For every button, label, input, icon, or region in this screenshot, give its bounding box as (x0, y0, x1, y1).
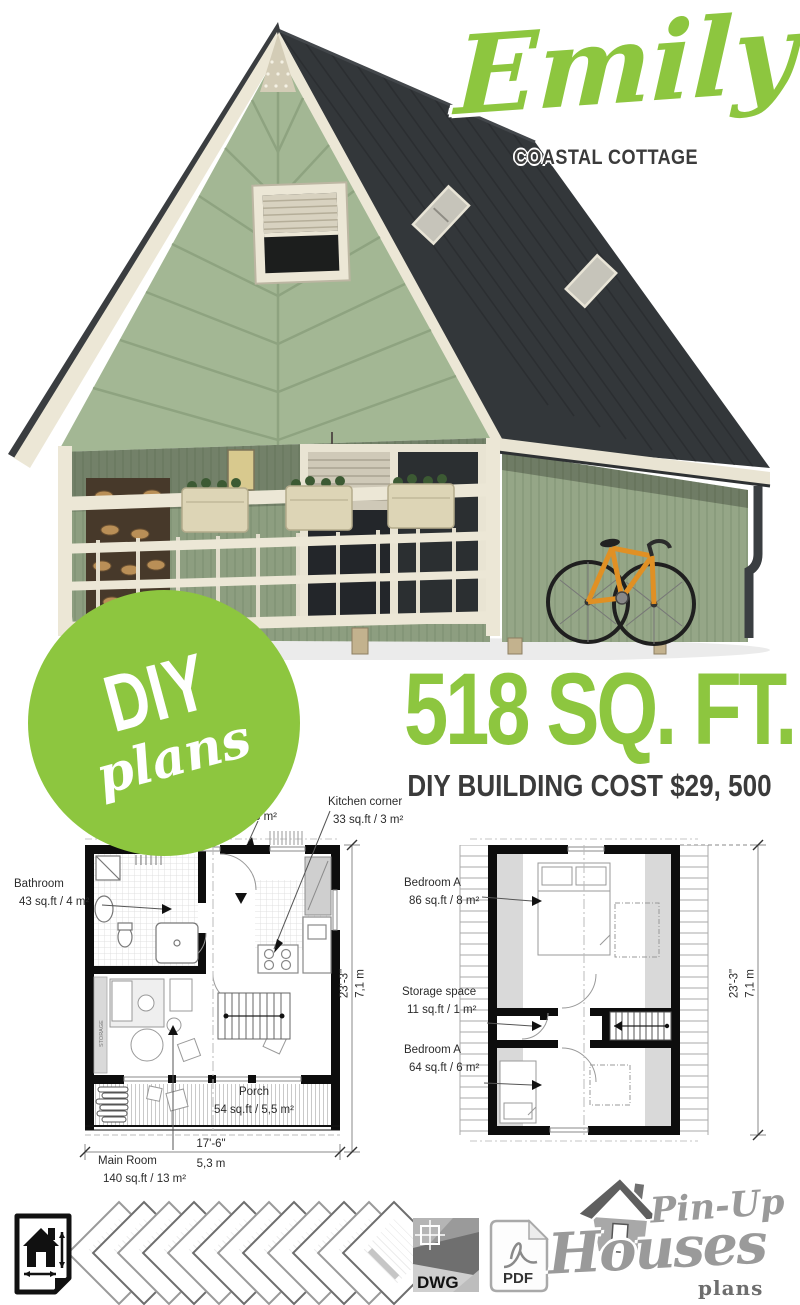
dwg-label: DWG (417, 1273, 459, 1292)
stairs (610, 1012, 671, 1040)
downspout (749, 486, 758, 638)
label-porch: Porch 54 sq.ft / 5,5 m² (198, 1084, 310, 1120)
label-bedroom-a: Bedroom A 86 sq.ft / 8 m² (404, 875, 479, 911)
label-bathroom: Bathroom 43 sq.ft / 4 m² (14, 876, 89, 912)
pdf-file-icon: PDF (489, 1219, 549, 1293)
label-kitchen-corner: Kitchen corner 33 sq.ft / 3 m² (328, 794, 403, 830)
page-subtitle: COASTAL COTTAGE (514, 146, 698, 170)
label-storage-space: Storage space 11 sq.ft / 1 m² (402, 984, 476, 1020)
double-bed (538, 863, 610, 955)
page-title: Emily (453, 0, 798, 137)
gable-window (252, 182, 349, 283)
dimension-depth-upper: 23'-3" 7,1 m (727, 947, 758, 1021)
stairs (218, 993, 290, 1039)
diy-plans-badge: DIY plans (28, 590, 300, 856)
floor-area-headline: 518 SQ. FT. (404, 656, 794, 763)
logo-plans-text: plans (698, 1276, 763, 1300)
single-bed (500, 1061, 536, 1123)
dimension-depth-ground: 23'-3" 7,1 m (337, 947, 368, 1021)
building-cost: DIY BUILDING COST $29, 500 (408, 768, 772, 804)
label-bedroom-b: Bedroom A 64 sq.ft / 6 m² (404, 1042, 479, 1078)
house-plan-document-icon (12, 1212, 74, 1296)
pdf-label: PDF (503, 1270, 533, 1287)
label-main-room: Main Room 140 sq.ft / 13 m² (98, 1153, 186, 1189)
pinup-houses-logo: Pin-Up Houses plans (548, 1186, 798, 1300)
storage-band-label: STORAGE (99, 1020, 105, 1047)
badge-diy-text: DIY (90, 645, 221, 741)
dwg-file-icon: DWG (413, 1218, 479, 1292)
